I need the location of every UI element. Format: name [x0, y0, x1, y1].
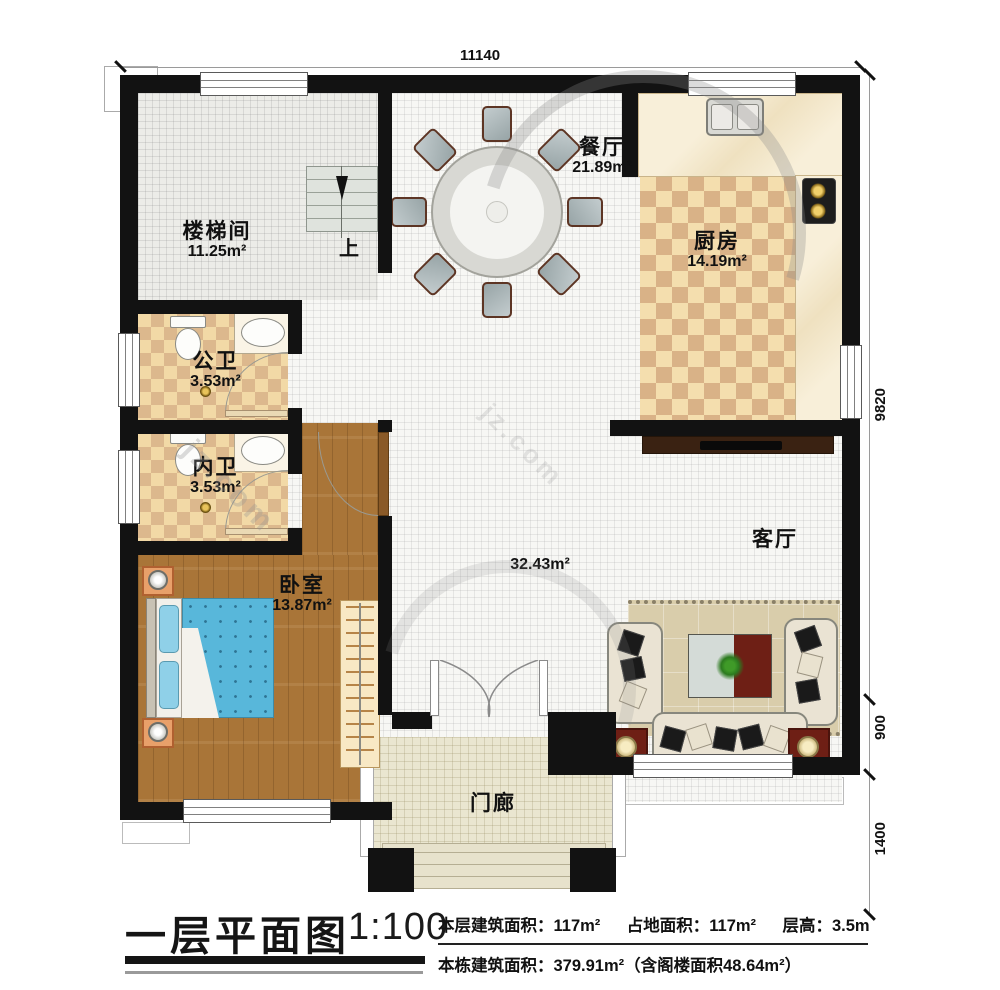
room-name: 公卫	[168, 350, 263, 373]
area-info-line1: 本层建筑面积：117m² 占地面积：117m² 层高：3.5m	[438, 912, 892, 936]
stove-burner	[810, 183, 826, 199]
room-area: 21.89m²	[552, 159, 652, 177]
room-label-living-name: 客厅	[735, 528, 815, 551]
kitchen-sink-basin	[737, 104, 759, 130]
dimension-right-upper-value: 9820	[872, 388, 889, 421]
wall-left	[120, 75, 138, 820]
entry-door-jamb	[539, 660, 548, 716]
dimension-line-right	[869, 75, 870, 915]
room-name: 厨房	[662, 230, 772, 253]
exterior-step-left	[122, 822, 190, 844]
dining-chair	[482, 106, 512, 142]
title-underline-thin	[125, 971, 423, 974]
area-info-divider	[438, 943, 868, 945]
window-living-bottom	[633, 754, 793, 778]
dimension-line-top	[120, 67, 860, 68]
dimension-right-middle-value: 900	[872, 715, 889, 740]
wall-bath-bedroom	[138, 541, 302, 555]
wall-bath-right-stub	[288, 528, 302, 541]
dining-chair	[482, 282, 512, 318]
window-kitchen-top	[688, 72, 796, 96]
wall-stair-dining	[378, 93, 392, 273]
room-name: 餐厅	[552, 136, 652, 159]
table-plant	[716, 652, 744, 680]
room-label-living-area: 32.43m²	[490, 556, 590, 574]
room-label-dining: 餐厅 21.89m²	[552, 136, 652, 177]
dining-chair	[567, 197, 603, 227]
wall-bath-right-stub	[288, 408, 302, 420]
stove-burner	[810, 203, 826, 219]
room-label-stairwell: 楼梯间 11.25m²	[162, 220, 272, 261]
kitchen-sink-basin	[711, 104, 733, 130]
wardrobe-rod	[359, 603, 361, 765]
porch-pillar	[570, 848, 616, 892]
kitchen-floor	[640, 175, 795, 420]
window-kitchen-right	[840, 345, 862, 419]
wall-entry-left	[392, 712, 432, 729]
wall-entry-right	[548, 712, 616, 757]
wall-bath-divider	[138, 420, 302, 434]
toilet	[170, 316, 206, 328]
room-area: 11.25m²	[162, 243, 272, 261]
dimension-top-value: 11140	[460, 47, 500, 64]
room-label-inner-bath: 内卫 3.53m²	[168, 456, 263, 497]
dimension-right-lower-value: 1400	[872, 822, 889, 855]
floor-plan-page: { "watermark": { "text": "jz.com" }, "di…	[0, 0, 1000, 990]
wall-right	[842, 75, 860, 775]
public-bath-door-leaf	[225, 410, 288, 417]
sofa-pillow	[712, 726, 737, 751]
sofa-pillow	[795, 678, 820, 703]
bed-pillow	[159, 661, 179, 709]
dining-table-center	[486, 201, 508, 223]
window-public-bath	[118, 333, 140, 407]
room-label-bedroom: 卧室 13.87m²	[242, 574, 362, 615]
room-label-kitchen: 厨房 14.19m²	[662, 230, 772, 271]
room-name: 客厅	[735, 528, 815, 551]
room-name: 内卫	[168, 456, 263, 479]
plan-title: 一层平面图	[125, 902, 350, 962]
nightstand-lamp	[148, 722, 168, 742]
wall-corridor-right-top	[378, 420, 392, 432]
wall-tv	[610, 420, 842, 436]
room-label-public-bath: 公卫 3.53m²	[168, 350, 263, 391]
sofa-pillow	[620, 656, 646, 682]
room-name: 卧室	[242, 574, 362, 597]
room-area: 13.87m²	[242, 597, 362, 615]
dining-chair	[391, 197, 427, 227]
room-area: 3.53m²	[168, 479, 263, 497]
staircase-direction-arrow	[336, 176, 348, 200]
room-area: 32.43m²	[490, 556, 590, 574]
bed-pillow	[159, 605, 179, 653]
room-label-porch: 门廊	[448, 792, 538, 815]
title-block: 一层平面图 1:100 本层建筑面积：117m² 占地面积：117m² 层高：3…	[0, 900, 1000, 990]
window-bedroom-bottom	[183, 799, 331, 823]
title-underline-thick	[125, 956, 425, 964]
land-area-text: 占地面积：117m²	[627, 917, 756, 935]
window-stairwell-top	[200, 72, 308, 96]
storey-height-text: 层高：3.5m	[783, 917, 870, 935]
bedroom-door-leaf	[378, 432, 389, 516]
bath-sink	[241, 318, 285, 347]
porch-pillar	[368, 848, 414, 892]
wall-corridor-right	[378, 516, 392, 715]
plan-scale: 1:100	[348, 906, 448, 949]
room-area: 3.53m²	[168, 373, 263, 391]
tv	[700, 441, 782, 450]
room-area: 14.19m²	[662, 253, 772, 271]
floor-area-text: 本层建筑面积：117m²	[438, 917, 600, 935]
inner-bath-door-leaf	[225, 528, 288, 535]
floor-drain	[200, 502, 211, 513]
bed-headboard	[146, 598, 156, 718]
area-info-line2: 本栋建筑面积：379.91m²（含阁楼面积48.64m²）	[438, 952, 801, 976]
window-inner-bath	[118, 450, 140, 524]
side-table-lamp	[797, 736, 819, 758]
wall-stair-bath	[138, 300, 302, 314]
stair-up-label: 上	[330, 238, 370, 260]
nightstand-lamp	[148, 570, 168, 590]
floor-plan-canvas: 楼梯间 11.25m² 上 餐厅 21.89m² 厨房 14.19m² 公卫 3…	[0, 0, 1000, 990]
entry-double-door-arcs	[438, 660, 540, 718]
wall-bath-right-stub	[288, 434, 302, 474]
room-name: 门廊	[448, 792, 538, 815]
room-name: 楼梯间	[162, 220, 272, 243]
up-text: 上	[330, 238, 370, 260]
wall-bath-right-stub	[288, 314, 302, 354]
